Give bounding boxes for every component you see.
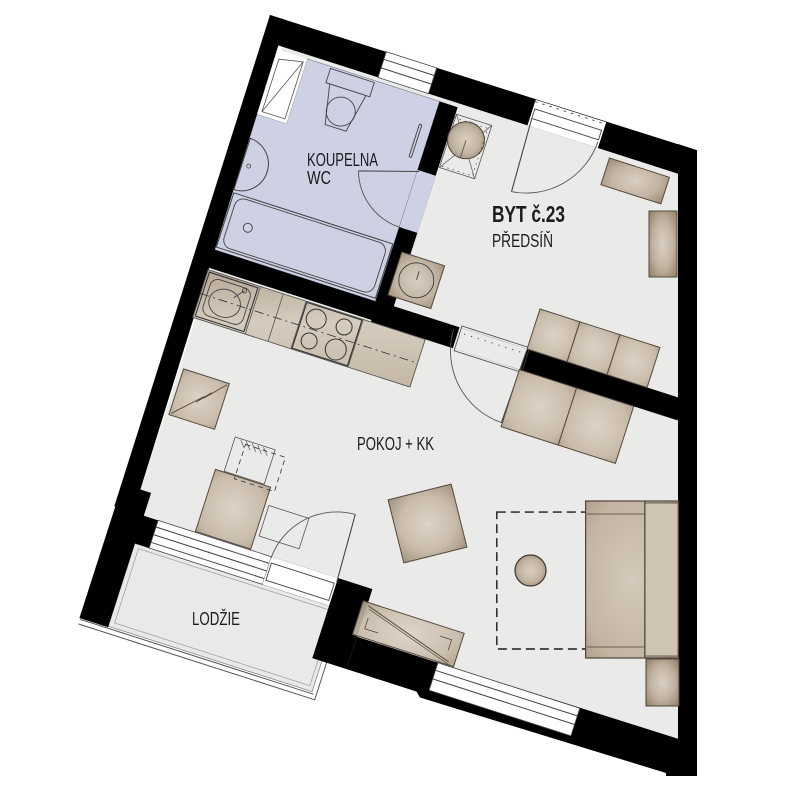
svg-text:WC: WC bbox=[307, 168, 331, 188]
svg-text:POKOJ + KK: POKOJ + KK bbox=[357, 434, 434, 454]
svg-text:PŘEDSÍŇ: PŘEDSÍŇ bbox=[492, 231, 553, 251]
svg-text:LODŽIE: LODŽIE bbox=[192, 609, 240, 629]
svg-text:BYT č.23: BYT č.23 bbox=[492, 201, 565, 227]
svg-text:KOUPELNA: KOUPELNA bbox=[307, 150, 378, 170]
